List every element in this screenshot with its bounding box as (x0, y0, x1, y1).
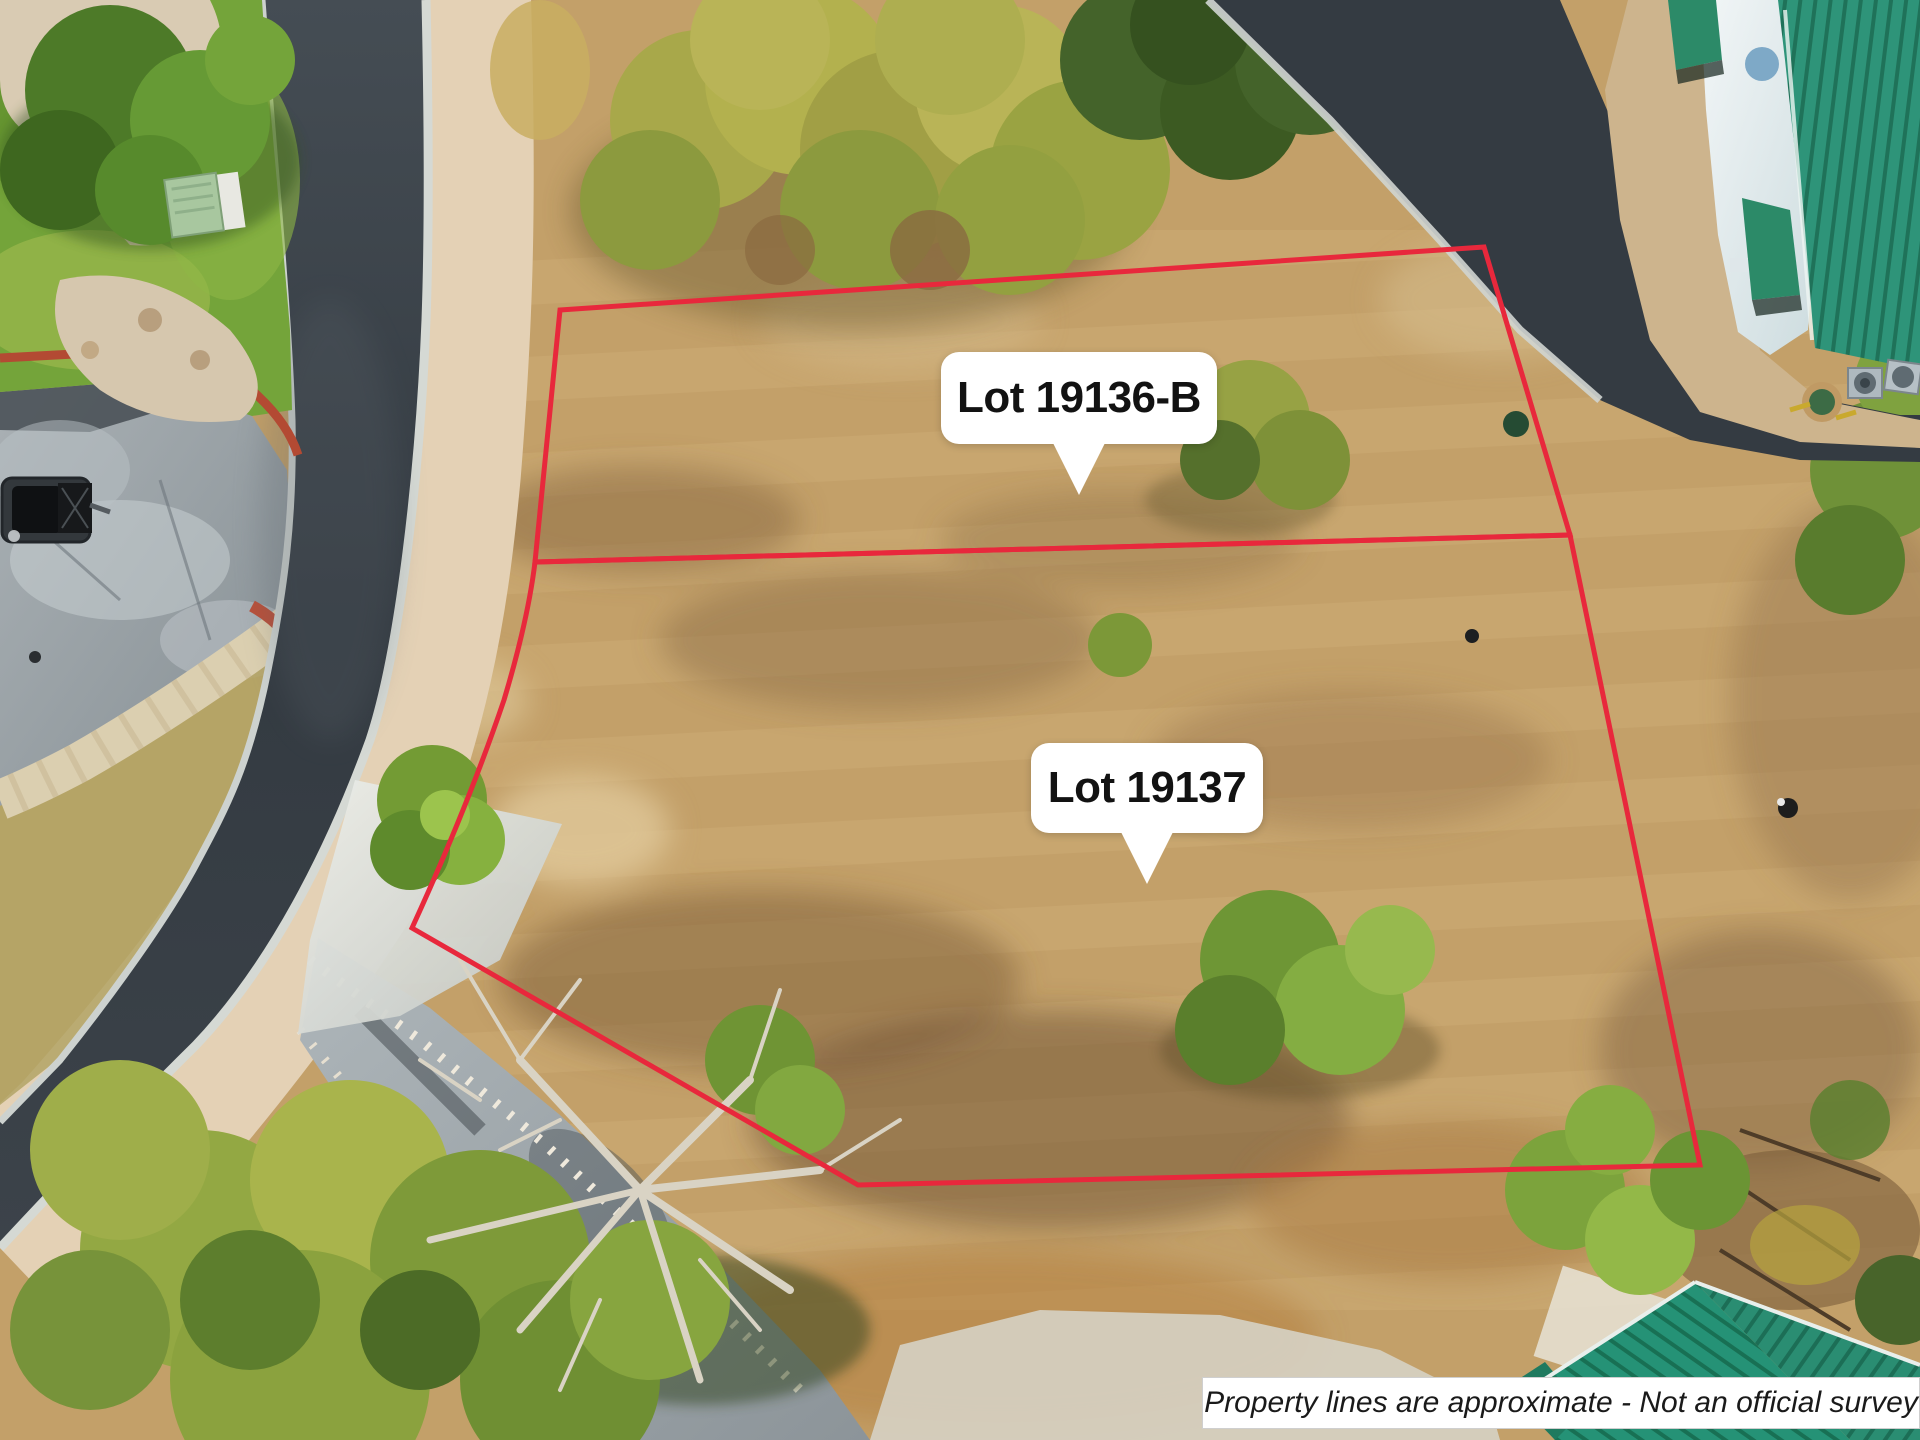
lot-label-19136b: Lot 19136-B (941, 352, 1217, 444)
window-awning-upper (1668, 0, 1724, 84)
lot-label-19136b-text: Lot 19136-B (957, 373, 1201, 423)
green-barrel (1503, 411, 1529, 437)
lot-label-19137: Lot 19137 (1031, 743, 1263, 833)
roof-vent-circle (1745, 47, 1779, 81)
small-shrub-mid-lot (1088, 613, 1152, 677)
utility-box (164, 170, 245, 238)
survey-disclaimer-bar: Property lines are approximate - Not an … (1202, 1377, 1920, 1429)
aerial-photo-canvas (0, 0, 1920, 1440)
lot-label-19137-text: Lot 19137 (1048, 763, 1246, 813)
lawn-tree (0, 5, 300, 250)
survey-disclaimer-text: Property lines are approximate - Not an … (1204, 1386, 1918, 1420)
aerial-lot-photo: Lot 19136-B Lot 19137 Property lines are… (0, 0, 1920, 1440)
